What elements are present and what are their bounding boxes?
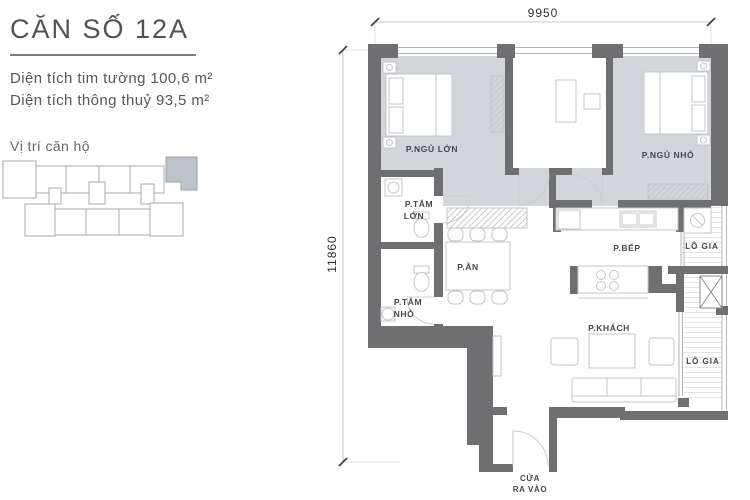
kitchen-counter <box>556 208 678 230</box>
middle-room-furniture <box>556 80 600 122</box>
kitchen-island-stove <box>578 266 648 298</box>
washing-machine-icon <box>684 208 711 233</box>
entrance-door-arc <box>513 431 548 466</box>
label-entrance-2: RA VÀO <box>513 485 547 494</box>
floor-plan: 9950 11860 <box>0 0 750 500</box>
shaft-window-box <box>700 276 722 308</box>
label-master-bedroom: P.NGỦ LỚN <box>406 143 458 154</box>
label-entrance-1: CỬA <box>520 474 540 483</box>
label-small-bedroom: P.NGỦ NHỎ <box>642 149 694 160</box>
furniture <box>381 61 722 402</box>
label-bath-big-1: P.TẮM <box>405 199 433 209</box>
label-loggia-top: LÔ GIA <box>685 242 719 251</box>
dim-width-label: 9950 <box>528 6 559 20</box>
label-bath-small-1: P.TẮM <box>394 297 422 307</box>
master-wardrobe <box>491 76 504 132</box>
small-wardrobe <box>648 184 708 199</box>
master-bed <box>383 62 452 148</box>
label-loggia-bottom: LÔ GIA <box>686 357 720 366</box>
label-kitchen: P.BẾP <box>613 243 640 253</box>
label-bath-small-2: NHỎ <box>394 308 415 319</box>
label-bath-big-2: LỚN <box>404 210 424 221</box>
label-dining: P.ĂN <box>457 262 479 272</box>
dim-height-label: 11860 <box>325 235 339 272</box>
living-set <box>493 334 676 402</box>
label-living: P.KHÁCH <box>588 323 630 333</box>
small-bed <box>644 61 710 145</box>
